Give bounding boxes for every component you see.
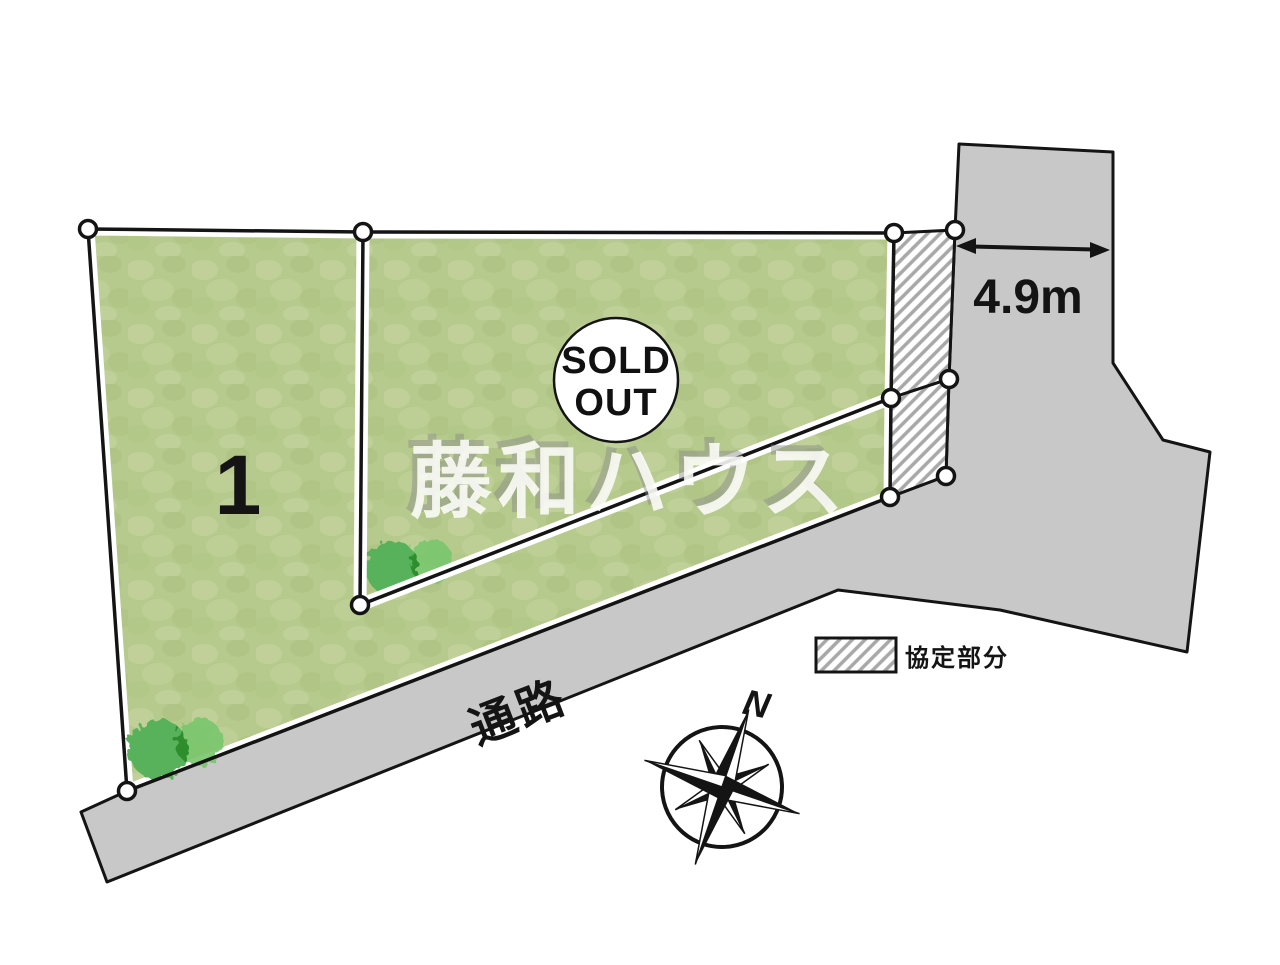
lot-divider-vertical <box>360 232 363 605</box>
vertex-marker <box>938 468 955 485</box>
vertex-marker <box>352 597 369 614</box>
vertex-marker <box>947 222 964 239</box>
compass-cardinal-points <box>618 683 826 891</box>
vertex-marker <box>80 221 97 238</box>
vertex-marker <box>119 783 136 800</box>
vertex-marker <box>882 489 899 506</box>
compass-rose-icon <box>618 683 826 891</box>
watermark: 藤和ハウス <box>410 437 850 528</box>
lot1-number-label: 1 <box>215 438 262 532</box>
sold-out-line1: SOLD <box>561 340 671 382</box>
legend: 協定部分 <box>816 638 1009 672</box>
site-plan-drawing: 藤和ハウス 藤和ハウス 1 通路 4.9m SOLD OUT 協定部分 <box>0 0 1280 960</box>
vertex-marker <box>355 224 372 241</box>
frontage-dimension-label: 4.9m <box>973 271 1082 324</box>
site-plan-page: 藤和ハウス 藤和ハウス 1 通路 4.9m SOLD OUT 協定部分 <box>0 0 1280 960</box>
vertex-marker <box>941 371 958 388</box>
sold-out-line2: OUT <box>574 382 657 424</box>
legend-label: 協定部分 <box>905 644 1009 672</box>
vertex-marker <box>883 390 900 407</box>
sold-out-badge: SOLD OUT <box>554 318 678 442</box>
legend-hatch-swatch <box>816 638 896 672</box>
vertex-marker <box>886 225 903 242</box>
compass-north-label: N <box>740 681 775 727</box>
